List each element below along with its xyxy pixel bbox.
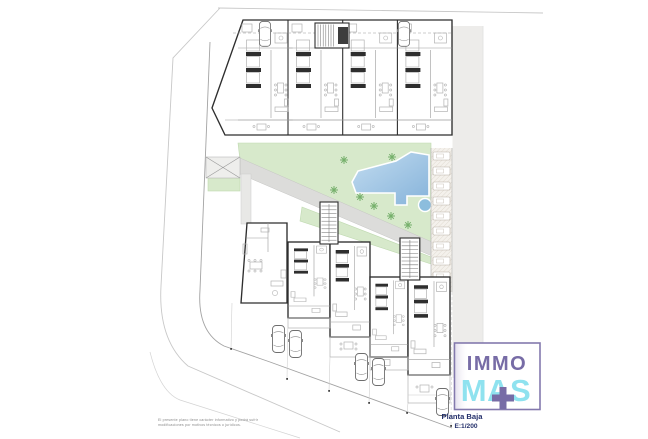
tree-icon [387,212,395,220]
plan-title: Planta Baja [442,412,484,421]
sidewalk-strip [453,26,484,378]
stair-tower [400,238,420,280]
logo-immo-text: IMMO [467,353,527,375]
stair-tower [320,202,338,244]
immomas-logo: IMMO MAS [455,343,541,410]
top-building [212,20,452,135]
disclaimer-line-1: El presente plano tiene carácter informa… [158,418,259,422]
car-icon [354,354,369,381]
parking-stall [433,197,450,205]
parking-stall [433,257,450,265]
parking-stall [433,167,450,175]
car-icon [271,326,286,353]
parking-stall [433,152,450,160]
parking-strip [431,148,452,292]
elevator-icon [338,27,348,44]
spa-pool [419,199,432,212]
car-icon [397,21,411,46]
car-icon [258,21,272,46]
parking-stall [433,242,450,250]
plan-scale: E:1/200 [454,423,477,430]
site-plan-document: El presente plano tiene carácter informa… [0,0,648,439]
car-icon [371,359,386,386]
tree-icon [404,221,412,229]
disclaimer-line-2: modificaciones por motivos técnicos o ju… [158,423,241,427]
disclaimer-text: El presente plano tiene carácter informa… [158,418,259,427]
tree-icon [356,193,364,201]
tree-icon [388,153,396,161]
parking-stall [433,212,450,220]
tree-icon [370,202,378,210]
car-icon [288,331,303,358]
tree-icon [330,186,338,194]
parking-stall [433,182,450,190]
site-plan-drawing: El presente plano tiene carácter informa… [0,0,648,439]
parking-stall [433,227,450,235]
logo-mas-text: MAS [461,373,531,408]
tree-icon [340,156,348,164]
stair-elevator-block [315,23,349,48]
